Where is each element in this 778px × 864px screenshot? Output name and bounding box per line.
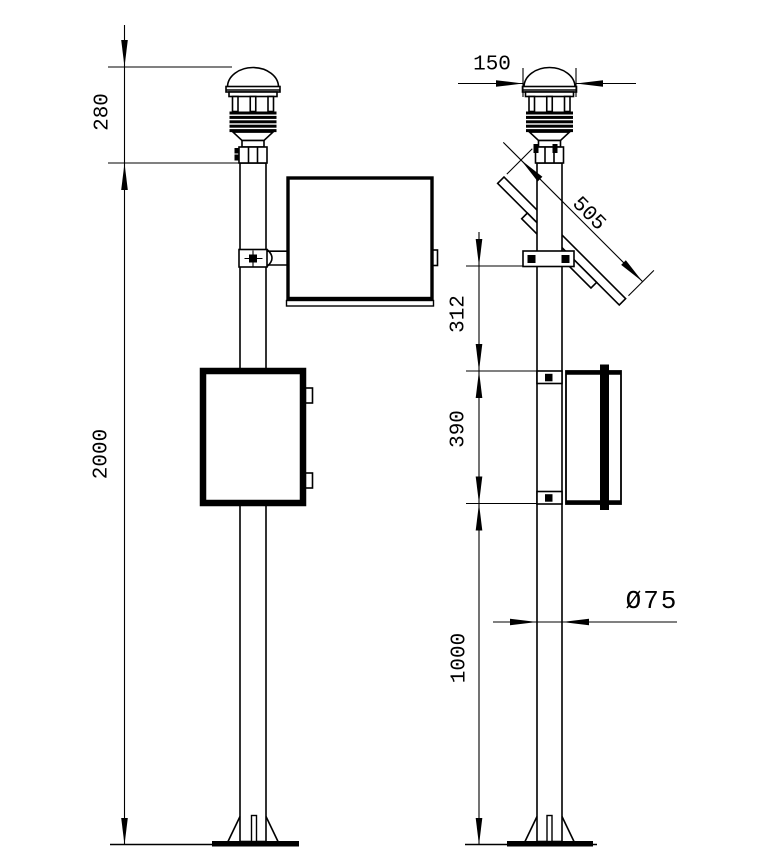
dimension-arrow: [496, 80, 523, 87]
gusset: [562, 817, 574, 842]
solar-panel-front: [288, 178, 432, 299]
sensor-connector: [235, 148, 240, 154]
dimension-arrow: [476, 344, 483, 371]
dimension-arrow: [121, 163, 128, 190]
dimension-arrow: [476, 371, 483, 398]
side-dimensions: 312 390 1000 150 505 Ø: [448, 54, 679, 846]
dimension-arrow: [476, 239, 483, 266]
dimension-label-cabinet-height: 390: [448, 410, 471, 448]
cabinet-door-hinge-bar: [600, 365, 609, 511]
solar-panel-frame-edge: [287, 301, 434, 307]
gusset: [266, 817, 278, 842]
cabinet-hinge: [306, 473, 313, 488]
dimension-arrow: [510, 619, 537, 626]
dimension-label-solar-panel-length: 505: [567, 193, 610, 236]
dimension-arrow: [621, 260, 645, 284]
dimension-label-sensor-height: 280: [92, 93, 115, 131]
dimension-arrow: [476, 818, 483, 845]
mount-screw: [534, 144, 539, 153]
anchor-bolt: [547, 816, 552, 842]
dimension-label-pole-diameter: Ø75: [626, 586, 679, 616]
dimension-arrow: [121, 818, 128, 845]
dimension-arrow: [562, 619, 589, 626]
drawing-sheet: 280 2000: [0, 0, 778, 864]
dimension-arrow: [476, 504, 483, 531]
control-cabinet-front: [203, 371, 303, 503]
gusset: [525, 817, 537, 842]
weather-sensor-side: [523, 67, 577, 163]
mount-screw: [553, 144, 558, 153]
cabinet-hinge: [306, 388, 313, 403]
dimension-arrow: [576, 80, 603, 87]
clamp-bolt: [545, 374, 553, 382]
dimension-label-sensor-cap-width: 150: [473, 54, 511, 77]
weather-sensor-front: [226, 67, 280, 163]
side-view: 312 390 1000 150 505 Ø: [448, 54, 679, 847]
base-plate: [507, 841, 593, 847]
control-cabinet-side: [566, 371, 621, 504]
dimension-label-panel-to-cabinet: 312: [448, 295, 471, 333]
clamp-bolt: [528, 255, 536, 263]
clamp-bolt: [545, 494, 553, 502]
technical-drawing-canvas: 280 2000: [0, 0, 778, 864]
extension-line: [507, 149, 532, 174]
dimension-label-cabinet-to-ground: 1000: [449, 633, 472, 683]
anchor-bolt: [252, 816, 257, 842]
gusset: [228, 817, 240, 842]
base-plate: [212, 841, 299, 847]
dimension-label-mast-height: 2000: [91, 429, 114, 479]
dimension-arrow: [121, 40, 128, 67]
clamp-bolt: [562, 255, 570, 263]
sensor-connector: [235, 155, 240, 161]
front-view: 280 2000: [91, 25, 438, 847]
extension-line: [628, 270, 653, 295]
dimension-arrow: [476, 477, 483, 504]
